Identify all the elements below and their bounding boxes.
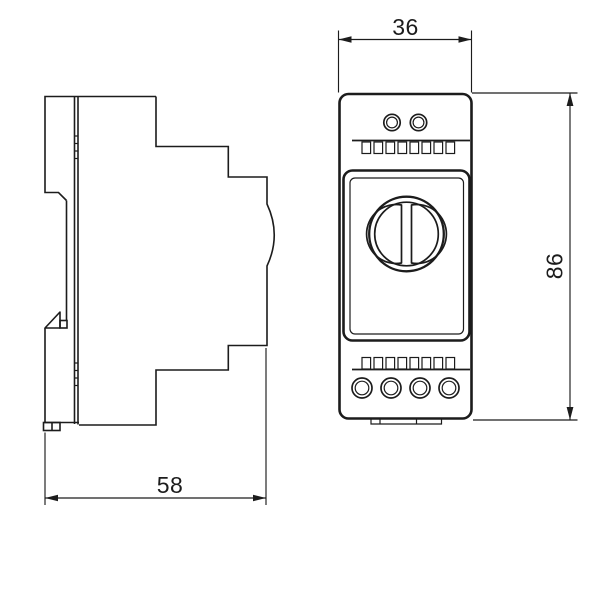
vent-slot bbox=[410, 358, 419, 370]
side-view bbox=[44, 97, 275, 431]
vent-slot bbox=[434, 358, 443, 370]
vent-slot bbox=[446, 358, 455, 370]
vent-slot bbox=[434, 142, 443, 154]
arrowhead-top bbox=[567, 93, 574, 106]
vent-slot bbox=[422, 358, 431, 370]
dial-half-right bbox=[412, 205, 447, 264]
dimension-label-width: 36 bbox=[392, 14, 419, 40]
dimension-label-height: 86 bbox=[542, 253, 568, 280]
terminal-screws bbox=[352, 378, 459, 398]
vent-slot bbox=[410, 142, 419, 154]
side-profile-outline bbox=[79, 97, 274, 426]
dimension-drawing: 36 86 58 bbox=[0, 0, 600, 600]
dimension-front-width: 36 bbox=[339, 14, 472, 93]
terminal-inner bbox=[442, 381, 456, 395]
vent-slot bbox=[398, 142, 407, 154]
terminal-inner bbox=[355, 381, 369, 395]
hole-right-inner bbox=[413, 117, 424, 128]
arrowhead-bottom bbox=[567, 407, 574, 420]
terminal-inner bbox=[413, 381, 427, 395]
drawing-canvas: 36 86 58 bbox=[0, 0, 600, 600]
arrowhead-right bbox=[253, 495, 266, 502]
dial-bezel bbox=[369, 197, 444, 272]
top-hook-outline bbox=[45, 97, 156, 201]
front-view bbox=[340, 94, 472, 424]
vent-slot bbox=[422, 142, 431, 154]
vent-slot bbox=[446, 142, 455, 154]
dimension-height: 86 bbox=[472, 93, 578, 420]
vent-slot-row-bottom bbox=[352, 358, 470, 370]
dial-ring bbox=[375, 202, 439, 266]
dial-half-left bbox=[367, 205, 402, 264]
arrowhead-right bbox=[459, 36, 472, 43]
vent-slot bbox=[398, 358, 407, 370]
top-screw-holes bbox=[384, 114, 427, 130]
vent-slot bbox=[386, 142, 395, 154]
arrowhead-left bbox=[339, 36, 352, 43]
arrowhead-left bbox=[45, 495, 58, 502]
vent-slot bbox=[386, 358, 395, 370]
vent-slot-row-top bbox=[352, 141, 470, 154]
din-clip-triangle bbox=[45, 312, 60, 328]
terminal-inner bbox=[384, 381, 398, 395]
vent-slot bbox=[374, 358, 383, 370]
hole-left-inner bbox=[387, 117, 398, 128]
vent-slot bbox=[374, 142, 383, 154]
rotary-dial bbox=[367, 197, 447, 272]
dimension-label-depth: 58 bbox=[157, 472, 184, 498]
din-clip-catch bbox=[60, 321, 67, 329]
vent-slot bbox=[362, 142, 371, 154]
vent-slot bbox=[362, 358, 371, 370]
